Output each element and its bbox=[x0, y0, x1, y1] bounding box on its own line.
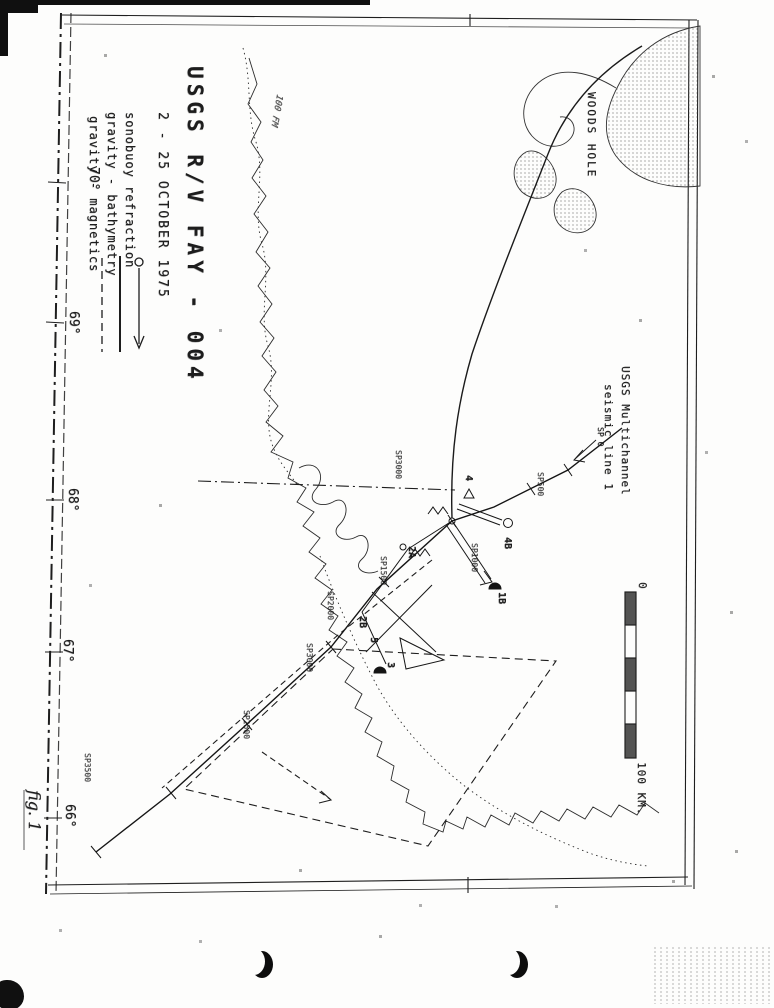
sp-label-2500: SP2500 bbox=[242, 710, 251, 739]
dash-dot-track bbox=[198, 481, 455, 490]
sp-label-2000: SP2000 bbox=[326, 591, 335, 620]
longitude-tick-66: 66° bbox=[62, 804, 77, 827]
sp-label-3000: SP3000 bbox=[305, 643, 314, 672]
map-frame bbox=[44, 13, 698, 894]
station-label-5: 5 bbox=[368, 637, 379, 643]
gravity-magnetics-track bbox=[162, 560, 432, 788]
sp-label-1000: SP1000 bbox=[470, 543, 479, 572]
longitude-tick-69: 69° bbox=[66, 311, 81, 334]
scanned-figure-page: USGS R/V FAY - 004 2 - 25 OCTOBER 1975 s… bbox=[0, 0, 774, 1008]
legend-label-gravity-magnetics: gravity - magnetics bbox=[87, 116, 101, 272]
longitude-tick-68: 68° bbox=[65, 488, 80, 511]
longitude-tick-70: 70° bbox=[86, 167, 101, 190]
scale-bar bbox=[625, 592, 636, 758]
legend-label-sonobuoy-refraction: sonobuoy refraction bbox=[123, 112, 137, 268]
sp-label-1500: SP1500 bbox=[379, 556, 388, 585]
cape-cod-land bbox=[514, 26, 700, 233]
place-label-woods-hole: WOODS HOLE bbox=[585, 92, 598, 178]
station-4-marker bbox=[464, 489, 474, 498]
station-label-4b: 4B bbox=[502, 537, 513, 549]
sp-label-3500: SP3500 bbox=[83, 753, 92, 782]
island-1 bbox=[514, 151, 556, 198]
station-label-3: 3 bbox=[385, 662, 396, 668]
station-4b-marker bbox=[504, 519, 513, 528]
scale-label-zero: 0 bbox=[636, 582, 649, 590]
track-sp-label: SP3000 bbox=[394, 450, 403, 479]
station-label-2a: 2A bbox=[406, 546, 417, 558]
figure-caption: fig. 1 bbox=[25, 790, 44, 831]
figure-title: USGS R/V FAY - 004 bbox=[183, 66, 207, 384]
legend-label-gravity-bathymetry: gravity - bathymetry bbox=[105, 112, 119, 277]
longitude-tick-67: 67° bbox=[60, 639, 75, 662]
cape-cod-hook bbox=[524, 72, 616, 146]
survey-polygon bbox=[184, 649, 556, 846]
station-label-1b: 1B bbox=[496, 592, 507, 604]
scale-label-100km: 100 KM. bbox=[635, 762, 648, 815]
station-label-2b: 2B bbox=[357, 616, 368, 628]
figure-dates: 2 - 25 OCTOBER 1975 bbox=[155, 112, 170, 299]
station-label-4: 4 bbox=[463, 475, 474, 481]
multichannel-label-line1: USGS Multichannel bbox=[619, 366, 632, 496]
station-1b-marker bbox=[489, 583, 501, 589]
multichannel-sp0-label: SP 0 bbox=[596, 427, 605, 446]
sp-label-500: SP500 bbox=[536, 472, 545, 496]
island-2 bbox=[554, 189, 596, 233]
